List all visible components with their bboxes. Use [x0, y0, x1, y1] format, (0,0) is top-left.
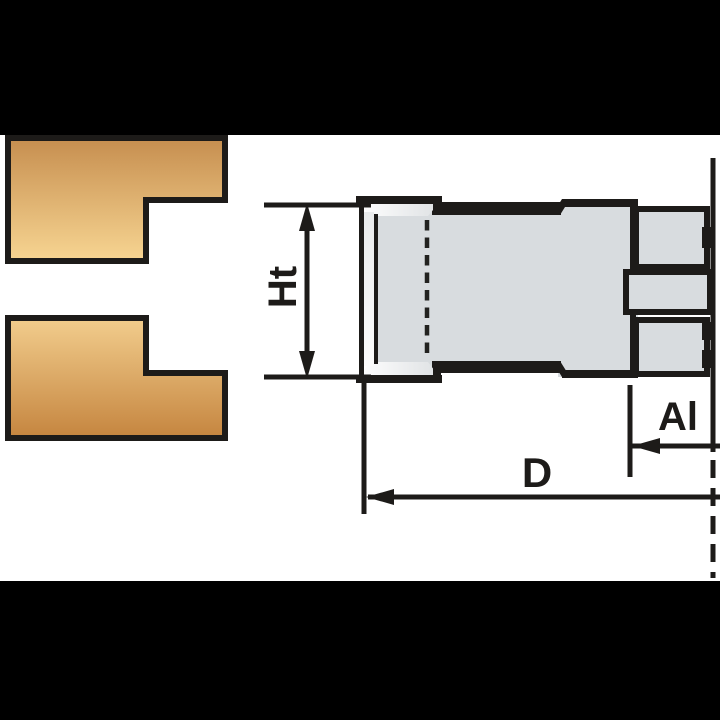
d-label: D — [522, 449, 552, 496]
body-outline-bottom-left — [432, 361, 561, 373]
technical-drawing: Ht D Al — [0, 0, 720, 720]
knife-top-right-corner — [433, 203, 441, 215]
spur-notch — [702, 350, 711, 368]
knife-left-outline — [359, 201, 364, 380]
knife-bottom-right-corner — [433, 363, 441, 375]
spur-block-bottom — [636, 320, 707, 374]
body-outline-bottom-right — [562, 370, 638, 378]
al-label: Al — [658, 395, 698, 439]
spur-notch — [702, 227, 711, 248]
spur-notch — [702, 322, 711, 340]
cutter-body — [377, 199, 638, 378]
ht-label: Ht — [261, 266, 305, 308]
cutter-body-left-mass — [377, 209, 563, 369]
body-outline-top-right — [562, 199, 638, 207]
spur-section — [626, 209, 711, 374]
spur-block-top — [636, 209, 707, 267]
spur-block-middle — [626, 272, 710, 312]
body-outline-top-left — [432, 202, 561, 215]
canvas: Ht D Al — [0, 0, 720, 720]
knife-left-face — [364, 212, 374, 366]
knife-inner-outline — [374, 214, 378, 364]
